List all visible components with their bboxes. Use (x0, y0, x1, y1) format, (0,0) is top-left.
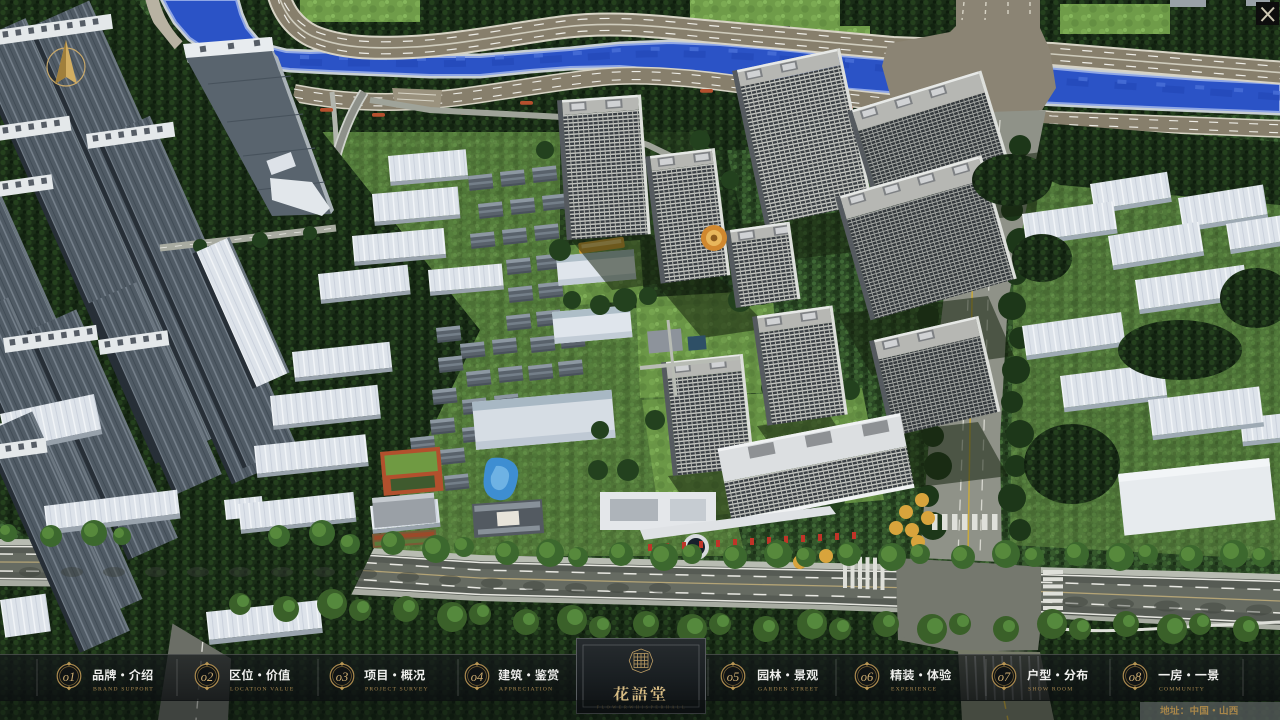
svg-text:o3: o3 (336, 670, 349, 684)
svg-text:o4: o4 (471, 670, 484, 684)
svg-text:APPRECIATION: APPRECIATION (499, 687, 553, 693)
svg-text:o8: o8 (1129, 670, 1142, 684)
svg-text:o7: o7 (998, 670, 1011, 684)
svg-text:GARDEN STREET: GARDEN STREET (758, 687, 819, 693)
svg-text:LOCATION VALUE: LOCATION VALUE (230, 687, 294, 693)
svg-text:o6: o6 (861, 670, 874, 684)
svg-text:o5: o5 (727, 670, 740, 684)
svg-text:EXPERIENCE: EXPERIENCE (891, 687, 937, 693)
svg-text:o2: o2 (201, 670, 214, 684)
svg-text:SHOW ROOM: SHOW ROOM (1028, 687, 1073, 693)
svg-text:o1: o1 (63, 670, 76, 684)
svg-text:COMMUNITY: COMMUNITY (1159, 687, 1205, 693)
svg-text:PROJECT SURVEY: PROJECT SURVEY (365, 687, 429, 693)
svg-text:BRAND SUPPORT: BRAND SUPPORT (93, 687, 154, 693)
